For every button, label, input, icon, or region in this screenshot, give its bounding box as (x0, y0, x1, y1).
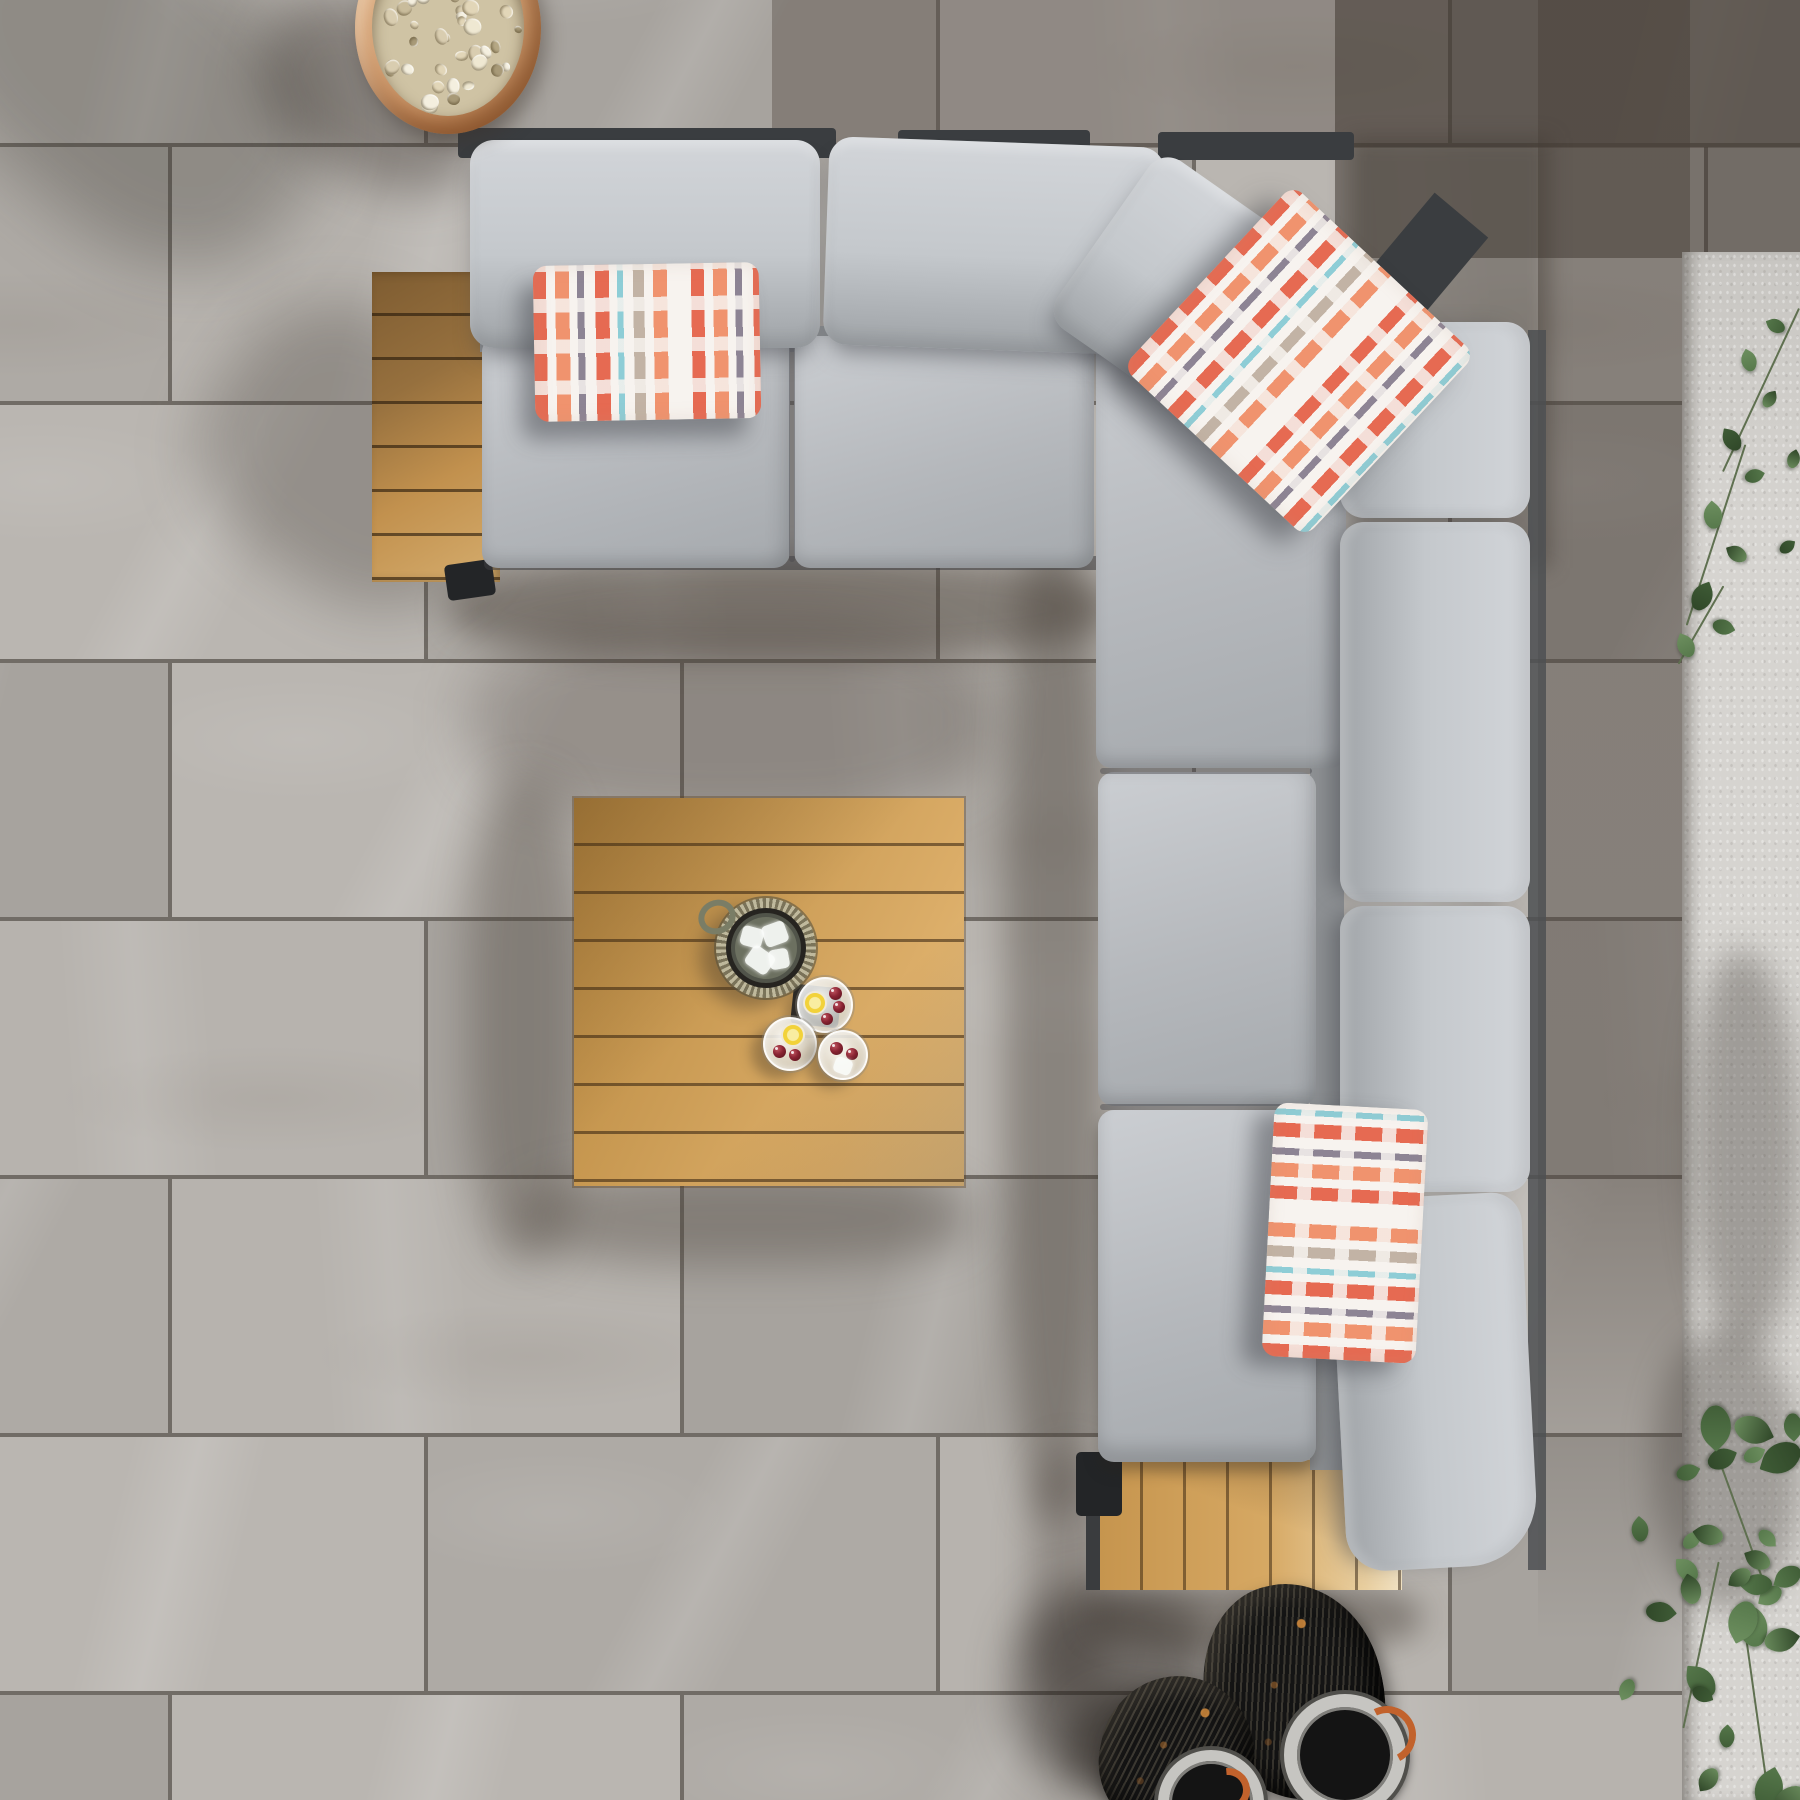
sofa-frame-bar (1158, 132, 1354, 160)
floor-tile (0, 921, 424, 1175)
floor-tile (0, 1695, 168, 1800)
floor-tile (0, 1179, 168, 1433)
back-cushion (1340, 522, 1530, 902)
lemon-slice (781, 1023, 805, 1047)
pebble (409, 19, 420, 30)
ice-cubes (735, 917, 797, 979)
pebble (409, 37, 419, 48)
seat-cushion (794, 336, 1094, 568)
pebble (433, 26, 450, 46)
pebble (400, 62, 416, 76)
cushion-seam (789, 342, 795, 562)
floor-tile (0, 663, 168, 917)
cherry (773, 1045, 786, 1058)
ice-cube (760, 920, 790, 949)
pebble (463, 17, 483, 36)
cherry (821, 1013, 833, 1025)
floor-tile (172, 1695, 680, 1800)
striped-accent-pillow (1261, 1102, 1428, 1364)
cushion-seam (1100, 768, 1312, 774)
cherry (789, 1049, 801, 1061)
cherry (846, 1048, 858, 1060)
cherry (829, 987, 842, 1000)
drink-glass (818, 1030, 868, 1080)
floor-tile (0, 147, 168, 401)
ice-cube (767, 947, 790, 970)
striped-accent-pillow (533, 262, 762, 422)
pebble (497, 3, 516, 22)
patio-scene (0, 0, 1800, 1800)
floor-tile (428, 1437, 936, 1691)
pebble (463, 0, 480, 15)
cherry (830, 1042, 843, 1055)
pebble (455, 51, 468, 61)
floor-tile (1452, 0, 1800, 143)
pebble (490, 40, 501, 54)
sofa-frame-edge (1528, 330, 1546, 1570)
pebble (432, 61, 449, 78)
floor-tile (0, 1437, 424, 1691)
pebble (462, 81, 475, 91)
pebble (446, 91, 463, 107)
lemon-slice (803, 991, 827, 1015)
drink-glass (763, 1017, 817, 1071)
seat-cushion (1098, 772, 1316, 1106)
floor-tile (940, 0, 1448, 143)
cherry (833, 1001, 845, 1013)
floor-tile (172, 1179, 680, 1433)
pebble (430, 79, 447, 96)
pebble (382, 56, 403, 77)
pebble (448, 0, 462, 3)
floor-tile (0, 405, 424, 659)
pebble (512, 24, 523, 35)
